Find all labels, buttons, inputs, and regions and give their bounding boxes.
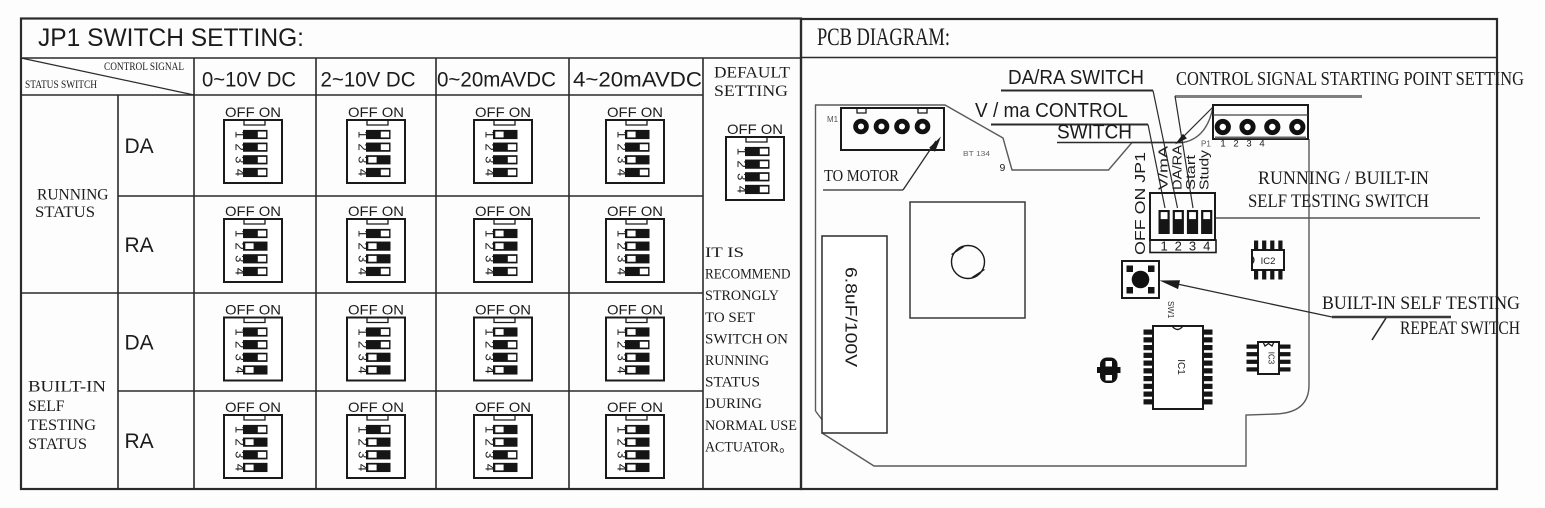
svg-text:OFF ON: OFF ON — [475, 104, 531, 120]
svg-text:BUILT-IN SELF TESTING: BUILT-IN SELF TESTING — [1322, 293, 1520, 314]
svg-text:BUILT-IN: BUILT-IN — [28, 379, 107, 396]
svg-text:OFF ON: OFF ON — [225, 104, 281, 120]
svg-text:RA: RA — [125, 234, 154, 257]
svg-text:M1: M1 — [827, 115, 839, 124]
svg-text:9: 9 — [1000, 162, 1006, 174]
svg-text:CONTROL SIGNAL STARTING POINT: CONTROL SIGNAL STARTING POINT SETTING — [1176, 68, 1524, 90]
svg-text:V/mA: V/mA — [1157, 145, 1171, 190]
svg-text:OFF ON: OFF ON — [348, 302, 404, 318]
svg-text:OFF ON: OFF ON — [225, 302, 281, 318]
svg-text:DEFAULT: DEFAULT — [714, 65, 790, 82]
svg-text:OFF ON JP1: OFF ON JP1 — [1132, 152, 1149, 255]
svg-text:4~20mAVDC: 4~20mAVDC — [573, 69, 702, 92]
svg-text:4: 4 — [1259, 139, 1264, 150]
svg-text:RUNNING: RUNNING — [37, 187, 109, 204]
svg-text:SETTING: SETTING — [714, 83, 788, 100]
svg-text:SELF TESTING SWITCH: SELF TESTING SWITCH — [1248, 191, 1429, 212]
svg-text:STATUS: STATUS — [35, 204, 95, 221]
svg-text:0~10V DC: 0~10V DC — [202, 69, 296, 92]
svg-text:2~10V DC: 2~10V DC — [321, 69, 416, 92]
svg-text:3: 3 — [1189, 239, 1196, 254]
svg-text:OFF ON: OFF ON — [475, 399, 531, 415]
svg-text:TO MOTOR: TO MOTOR — [824, 166, 900, 185]
svg-text:PCB DIAGRAM:: PCB DIAGRAM: — [817, 24, 950, 51]
svg-text:1: 1 — [1160, 239, 1167, 254]
svg-text:DA/RA SWITCH: DA/RA SWITCH — [1008, 67, 1144, 89]
svg-text:OFF ON: OFF ON — [348, 104, 404, 120]
svg-text:DA/RA: DA/RA — [1171, 144, 1185, 190]
svg-text:OFF ON: OFF ON — [607, 302, 663, 318]
svg-text:3: 3 — [1246, 139, 1251, 150]
svg-text:Start: Start — [1184, 154, 1198, 190]
svg-text:P1: P1 — [1201, 140, 1211, 149]
svg-text:STRONGLY: STRONGLY — [705, 288, 779, 304]
svg-text:RUNNING / BUILT-IN: RUNNING / BUILT-IN — [1258, 168, 1429, 189]
svg-text:SWITCH: SWITCH — [1057, 122, 1132, 144]
svg-text:STATUS SWITCH: STATUS SWITCH — [25, 77, 97, 91]
svg-text:OFF ON: OFF ON — [225, 399, 281, 415]
svg-text:DA: DA — [125, 135, 154, 158]
svg-text:1: 1 — [1220, 139, 1225, 150]
svg-text:OFF ON: OFF ON — [348, 203, 404, 219]
svg-text:TESTING: TESTING — [28, 417, 96, 434]
svg-text:IC2: IC2 — [1261, 256, 1276, 267]
svg-text:RUNNING: RUNNING — [705, 353, 769, 369]
svg-text:OFF ON: OFF ON — [225, 203, 281, 219]
svg-text:IT IS: IT IS — [705, 245, 744, 261]
svg-text:6.8uF/100V: 6.8uF/100V — [842, 267, 861, 368]
svg-text:0~20mAVDC: 0~20mAVDC — [437, 69, 556, 92]
svg-text:IC3: IC3 — [1267, 352, 1276, 365]
svg-text:SW1: SW1 — [1166, 301, 1175, 319]
svg-text:Study: Study — [1198, 149, 1212, 190]
svg-text:OFF ON: OFF ON — [727, 121, 783, 137]
svg-text:REPEAT SWITCH: REPEAT SWITCH — [1400, 318, 1520, 339]
svg-text:TO SET: TO SET — [705, 310, 755, 326]
svg-text:OFF ON: OFF ON — [607, 203, 663, 219]
svg-text:V / ma CONTROL: V / ma CONTROL — [975, 100, 1128, 122]
svg-text:STATUS: STATUS — [28, 436, 87, 453]
svg-text:BT 134: BT 134 — [963, 149, 990, 158]
svg-text:ACTUATOR。: ACTUATOR。 — [705, 439, 793, 455]
svg-text:STATUS: STATUS — [705, 375, 760, 391]
svg-text:RA: RA — [125, 430, 154, 453]
svg-text:RECOMMEND: RECOMMEND — [705, 267, 791, 283]
svg-text:OFF ON: OFF ON — [475, 302, 531, 318]
svg-text:IC1: IC1 — [1175, 359, 1186, 375]
svg-text:NORMAL USE: NORMAL USE — [705, 418, 797, 434]
svg-text:CONTROL SIGNAL: CONTROL SIGNAL — [104, 59, 184, 73]
svg-text:SWITCH ON: SWITCH ON — [705, 331, 788, 347]
svg-text:JP1 SWITCH SETTING:: JP1 SWITCH SETTING: — [38, 24, 304, 52]
svg-text:DURING: DURING — [705, 396, 762, 412]
svg-text:4: 4 — [1203, 239, 1210, 254]
svg-text:DA: DA — [125, 332, 154, 355]
svg-text:SELF: SELF — [28, 398, 65, 415]
svg-text:OFF ON: OFF ON — [607, 399, 663, 415]
svg-text:2: 2 — [1233, 139, 1238, 150]
svg-text:2: 2 — [1175, 239, 1182, 254]
svg-text:OFF ON: OFF ON — [348, 399, 404, 415]
svg-text:OFF ON: OFF ON — [607, 104, 663, 120]
svg-text:OFF ON: OFF ON — [475, 203, 531, 219]
